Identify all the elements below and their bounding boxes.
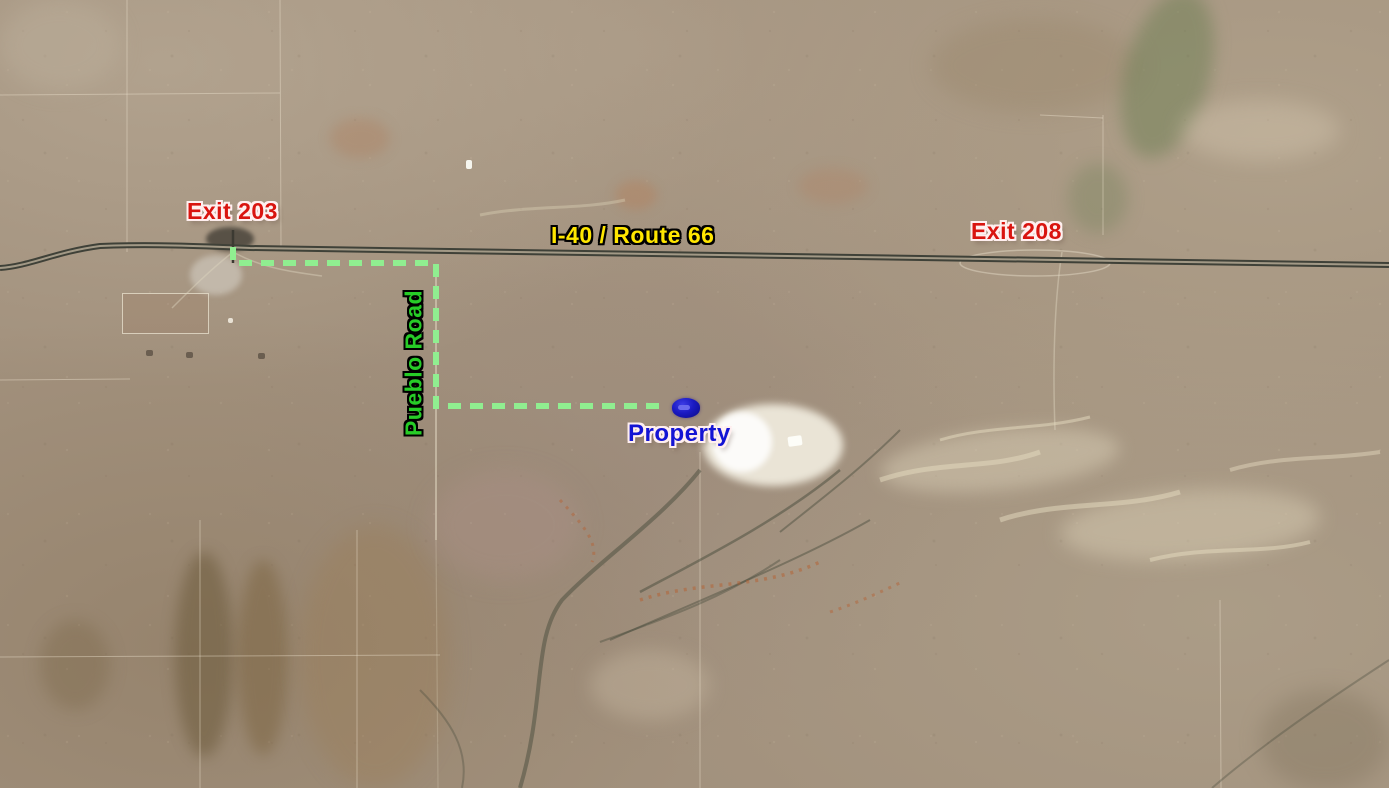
exit-208-label: Exit 208 — [971, 220, 1062, 243]
property-label: Property — [628, 422, 731, 446]
pueblo-road-label: Pueblo Road — [403, 290, 426, 436]
exit-203-label: Exit 203 — [187, 200, 278, 223]
route-dashed-path — [233, 247, 659, 406]
satellite-map: Exit 203 I-40 / Route 66 Exit 208 Pueblo… — [0, 0, 1389, 788]
property-marker-slot — [678, 405, 690, 410]
route-layer — [0, 0, 1389, 788]
highway-i40-label: I-40 / Route 66 — [551, 224, 714, 247]
property-marker — [672, 398, 700, 418]
